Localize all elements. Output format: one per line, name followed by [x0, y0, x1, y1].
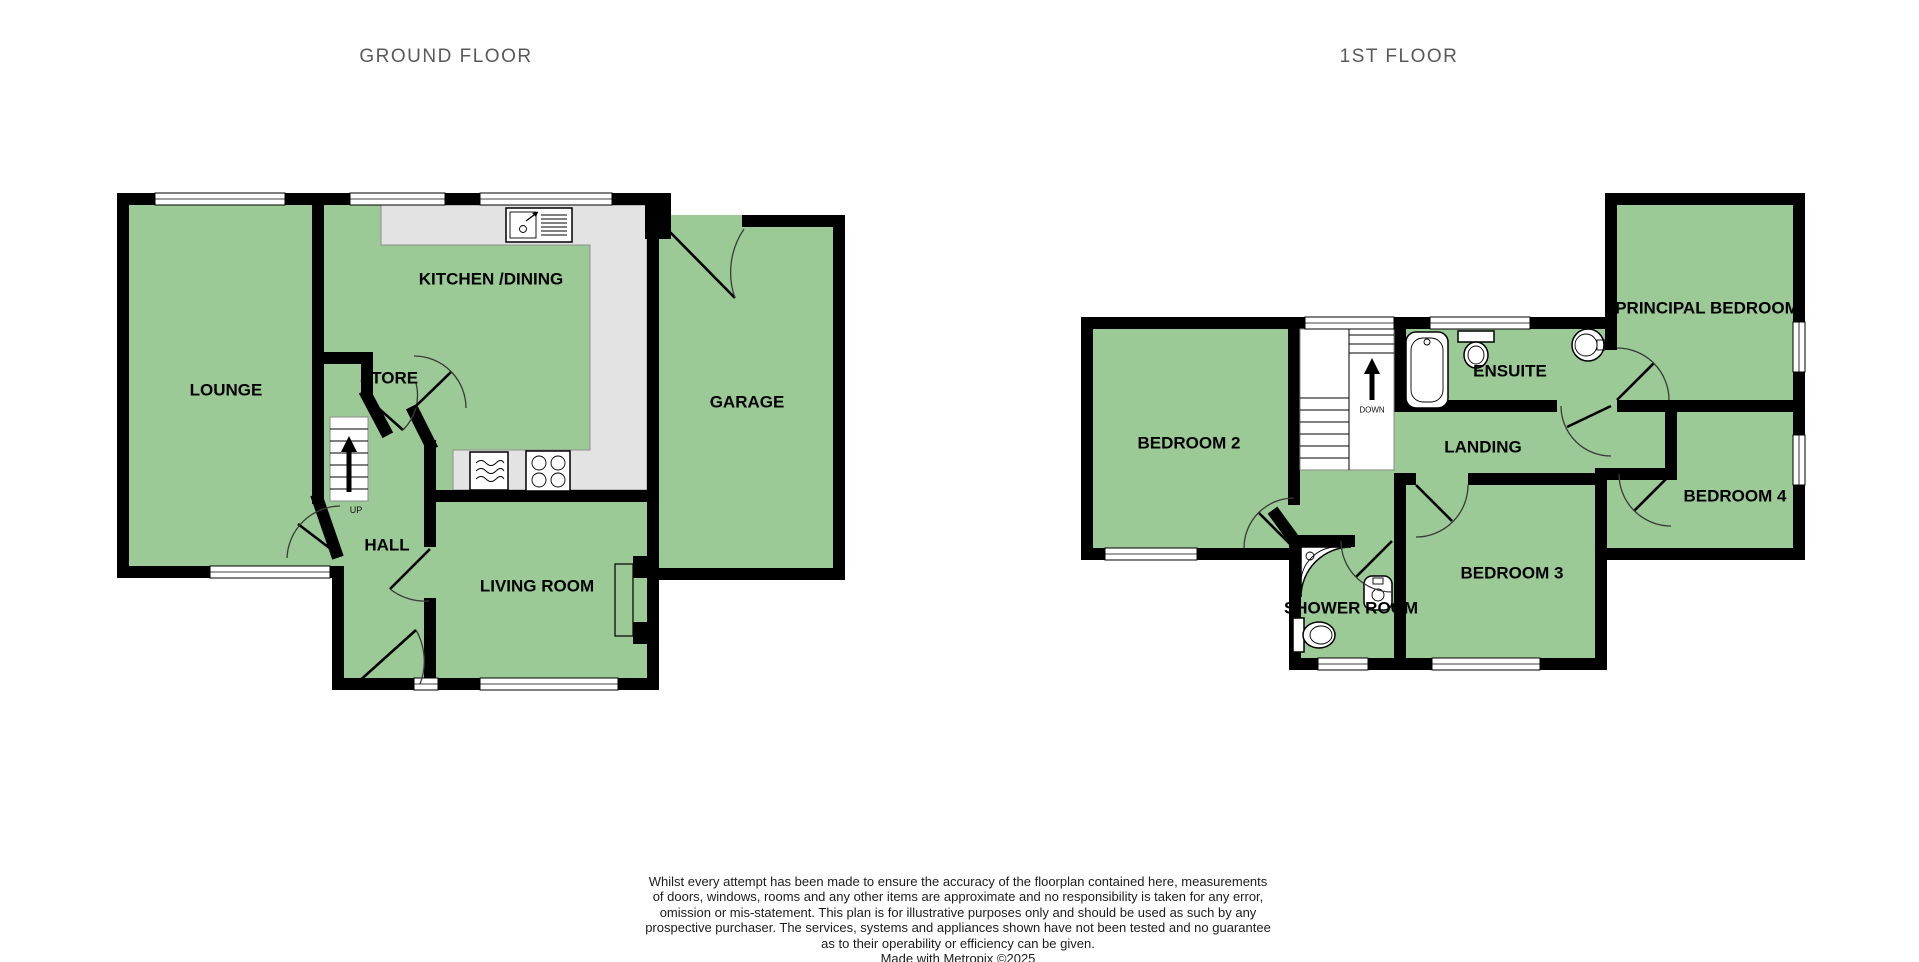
bath-icon: [1406, 332, 1448, 408]
window: [1793, 322, 1805, 372]
window: [1105, 548, 1197, 560]
window: [1430, 317, 1530, 329]
disclaimer-line: omission or mis-statement. This plan is …: [568, 905, 1348, 920]
metropix-credit: Made with Metropix ©2025: [568, 951, 1348, 962]
window: [414, 678, 438, 690]
room-label-lounge: LOUNGE: [190, 381, 263, 400]
stairs-up: [330, 417, 368, 501]
washer-icon: [470, 452, 508, 490]
room-label-garage: GARAGE: [710, 393, 785, 412]
floorplan-drawing: LOUNGE KITCHEN /DINING STORE HALL LIVING…: [0, 0, 1919, 962]
room-label-principal-bedroom: PRINCIPAL BEDROOM: [1615, 299, 1799, 318]
window: [1305, 317, 1394, 329]
window: [1432, 658, 1540, 670]
disclaimer-line: as to their operability or efficiency ca…: [568, 936, 1348, 951]
floorplan-page: GROUND FLOOR 1ST FLOOR: [0, 0, 1919, 962]
disclaimer-line: Whilst every attempt has been made to en…: [568, 874, 1348, 889]
room-label-living-room: LIVING ROOM: [480, 577, 594, 596]
stairs-down: [1300, 329, 1394, 470]
room-label-store: STORE: [360, 369, 418, 388]
basin-icon: [1572, 329, 1605, 361]
disclaimer-text: Whilst every attempt has been made to en…: [568, 874, 1348, 962]
window: [1318, 658, 1368, 670]
room-label-hall: HALL: [364, 536, 409, 555]
window: [210, 566, 330, 578]
room-living-area: [424, 502, 659, 690]
ground-room-areas: [117, 193, 845, 690]
window: [480, 193, 612, 205]
stairs-down-label: DOWN: [1359, 406, 1385, 415]
room-label-bedroom4: BEDROOM 4: [1684, 487, 1788, 506]
ground-floor-plan: LOUNGE KITCHEN /DINING STORE HALL LIVING…: [117, 193, 845, 690]
room-label-landing: LANDING: [1444, 438, 1521, 457]
first-room-areas: [1081, 193, 1805, 670]
room-label-ensuite: ENSUITE: [1473, 362, 1547, 381]
stairs-up-label: UP: [350, 505, 363, 515]
disclaimer-line: prospective purchaser. The services, sys…: [568, 920, 1348, 935]
window: [480, 678, 618, 690]
window: [1793, 435, 1805, 485]
window: [155, 193, 285, 205]
room-label-bedroom3: BEDROOM 3: [1461, 564, 1564, 583]
window: [350, 193, 445, 205]
disclaimer-line: of doors, windows, rooms and any other i…: [568, 889, 1348, 904]
hob-icon: [526, 451, 570, 491]
room-label-kitchen-dining: KITCHEN /DINING: [419, 270, 564, 289]
sink-icon: [506, 208, 572, 242]
room-label-shower-room: SHOWER ROOM: [1284, 599, 1418, 618]
room-label-bedroom2: BEDROOM 2: [1138, 434, 1241, 453]
first-floor-plan: BEDROOM 2 ENSUITE PRINCIPAL BEDROOM LAND…: [1081, 193, 1805, 670]
room-hall-area: [332, 566, 436, 690]
